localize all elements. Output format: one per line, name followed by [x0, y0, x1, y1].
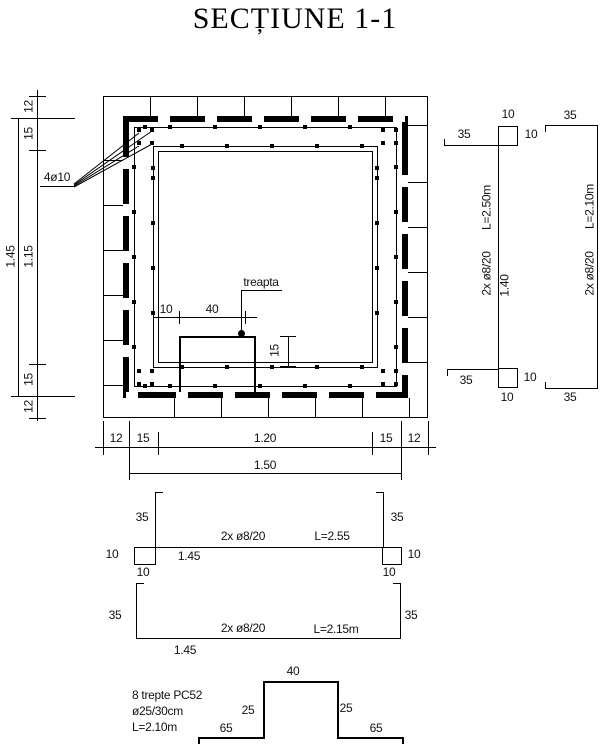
- stepiron-note-3: L=2.10m: [132, 721, 262, 734]
- corner-rebar-dot: [394, 128, 398, 132]
- dim-left-overall: 1.45: [5, 237, 18, 277]
- ubar-right-length: L=2.10m: [584, 177, 597, 237]
- dim-tick: [29, 96, 46, 97]
- corner-rebar-dot: [381, 369, 385, 373]
- corner-rebar-dot: [150, 369, 154, 373]
- step-dim-width: 40: [199, 303, 225, 316]
- dim-left-opening: 1.15: [23, 237, 36, 277]
- ubar-bottom-hook-left: 35: [102, 609, 128, 622]
- corner-rebar-dot: [381, 128, 385, 132]
- hook-bend-square-bottom: [498, 368, 518, 388]
- bar-tick: [393, 583, 401, 584]
- dim-chain-bottom-line: [95, 447, 436, 448]
- stepiron-top: 40: [280, 665, 306, 678]
- topbar-hook-right: 35: [384, 511, 410, 524]
- hook-bend-square-right: [382, 547, 402, 565]
- step-dim-left: 10: [156, 303, 176, 316]
- topbar-hook-left: 35: [129, 511, 155, 524]
- corner-rebar-dot: [394, 141, 398, 145]
- bar-line: [156, 547, 382, 548]
- bar-tick: [155, 492, 163, 493]
- extension-line: [401, 421, 402, 480]
- bar-line: [545, 388, 598, 389]
- extension-line: [158, 432, 159, 453]
- stepiron-foot-left: 65: [213, 722, 239, 735]
- step-outline: [179, 336, 256, 338]
- vbar-length: L=2.50m: [481, 178, 494, 238]
- ubar-bottom-length: L=2.15m: [302, 623, 370, 636]
- bar-line: [136, 583, 137, 638]
- extension-line: [11, 396, 75, 397]
- dim-tick: [179, 311, 180, 324]
- step-label: treapta: [236, 276, 286, 289]
- topbar-length: L=2.55: [301, 530, 363, 543]
- corner-rebar-dot: [150, 141, 154, 145]
- dim-tick: [280, 366, 296, 367]
- hook-bend-square-top: [498, 126, 518, 146]
- dim-bottom-wall-right: 15: [374, 432, 398, 445]
- bar-line: [444, 145, 498, 146]
- corner-rebar-dot: [137, 128, 141, 132]
- dim-bottom-wall-left: 15: [131, 432, 155, 445]
- vbar-height: 1.40: [499, 267, 512, 305]
- topbar-end-right: 10: [402, 548, 426, 561]
- step-outline: [254, 336, 256, 392]
- topbar-end-right-below: 10: [377, 566, 401, 579]
- stepiron-foot-right: 65: [363, 722, 389, 735]
- corner-rebar-dot: [150, 382, 154, 386]
- dim-left-wall-top: 15: [23, 114, 36, 154]
- topbar-spec: 2x ø8/20: [199, 530, 287, 543]
- vbar-hook-top-width: 10: [496, 108, 520, 121]
- extension-line: [103, 421, 104, 453]
- dim-bottom-masonry-left: 12: [104, 432, 128, 445]
- ubar-bottom-width: 1.45: [163, 644, 207, 657]
- corner-rebar-dot: [150, 128, 154, 132]
- bar-line: [337, 681, 339, 739]
- ubar-bottom-hook-right: 35: [398, 609, 424, 622]
- dim-bottom-opening: 1.20: [245, 432, 285, 445]
- step-depth-dim-line: [288, 336, 289, 366]
- bar-line: [597, 125, 598, 389]
- leader-line: [241, 291, 242, 333]
- extension-line: [372, 432, 373, 453]
- bar-line: [545, 125, 598, 126]
- drawing-canvas: SECȚIUNE 1-1 4ø10 treapta 10 40 15 12 15…: [0, 0, 604, 754]
- corner-bars-label: 4ø10: [38, 171, 76, 184]
- bar-line: [198, 737, 263, 739]
- bar-line: [263, 681, 339, 683]
- corner-rebar-dot: [394, 369, 398, 373]
- extension-line: [428, 421, 429, 453]
- bar-line: [136, 638, 401, 639]
- bar-line: [498, 146, 499, 369]
- corner-rebar-dot: [137, 382, 141, 386]
- extension-line: [129, 421, 130, 480]
- vbar-hook-top-height: 10: [521, 128, 541, 141]
- bar-tick: [376, 492, 384, 493]
- extension-line: [11, 118, 75, 119]
- label-underline: [241, 290, 282, 291]
- hook-bend-square-left: [134, 547, 156, 565]
- dim-overall-bottom-line: [129, 473, 402, 474]
- dim-overall-left-line: [18, 118, 19, 397]
- label-underline: [40, 186, 76, 187]
- bar-line: [263, 681, 265, 739]
- corner-rebar-dot: [381, 382, 385, 386]
- stepiron-note-1: 8 trepte PC52: [132, 689, 262, 702]
- corner-rebar-dot: [381, 141, 385, 145]
- bar-tick: [198, 737, 200, 744]
- dim-tick: [280, 336, 296, 337]
- dim-bottom-overall: 1.50: [245, 459, 285, 472]
- bar-line: [155, 492, 156, 547]
- stepiron-leg-left: 25: [235, 704, 261, 717]
- ubar-right-spec: 2x ø8/20: [584, 244, 597, 304]
- bar-tick: [545, 382, 546, 389]
- corner-rebar-dot: [394, 382, 398, 386]
- corner-rebar-dot: [137, 369, 141, 373]
- topbar-width: 1.45: [167, 550, 211, 563]
- vbar-hook-bot-leg: 35: [453, 374, 479, 387]
- bar-line: [400, 583, 401, 638]
- dim-tick: [29, 418, 46, 419]
- dim-tick: [153, 311, 154, 324]
- corner-rebar-dot: [137, 141, 141, 145]
- bar-tick: [447, 369, 448, 376]
- topbar-end-left-below: 10: [131, 566, 155, 579]
- topbar-end-left: 10: [100, 548, 124, 561]
- vbar-spec: 2x ø8/20: [481, 244, 494, 304]
- dim-left-masonry-bottom: 12: [23, 387, 36, 427]
- ubar-right-hook-bot: 35: [556, 391, 584, 404]
- bar-tick: [444, 139, 445, 146]
- vbar-hook-bot-height: 10: [520, 371, 540, 384]
- bar-line: [383, 492, 384, 547]
- ubar-right-hook-top: 35: [556, 109, 584, 122]
- bar-tick: [136, 583, 144, 584]
- vbar-hook-bot-width: 10: [495, 391, 519, 404]
- bar-line: [337, 737, 404, 739]
- dim-chain-left-line: [37, 90, 38, 421]
- bar-line: [447, 369, 498, 370]
- bar-tick: [545, 125, 546, 132]
- dim-bottom-masonry-right: 12: [402, 432, 426, 445]
- dim-tick: [29, 364, 46, 365]
- dim-tick: [245, 311, 246, 324]
- bar-tick: [402, 737, 404, 744]
- dim-tick: [29, 150, 46, 151]
- step-outline: [179, 336, 181, 392]
- vbar-hook-top-leg: 35: [451, 128, 477, 141]
- ubar-bottom-spec: 2x ø8/20: [199, 622, 287, 635]
